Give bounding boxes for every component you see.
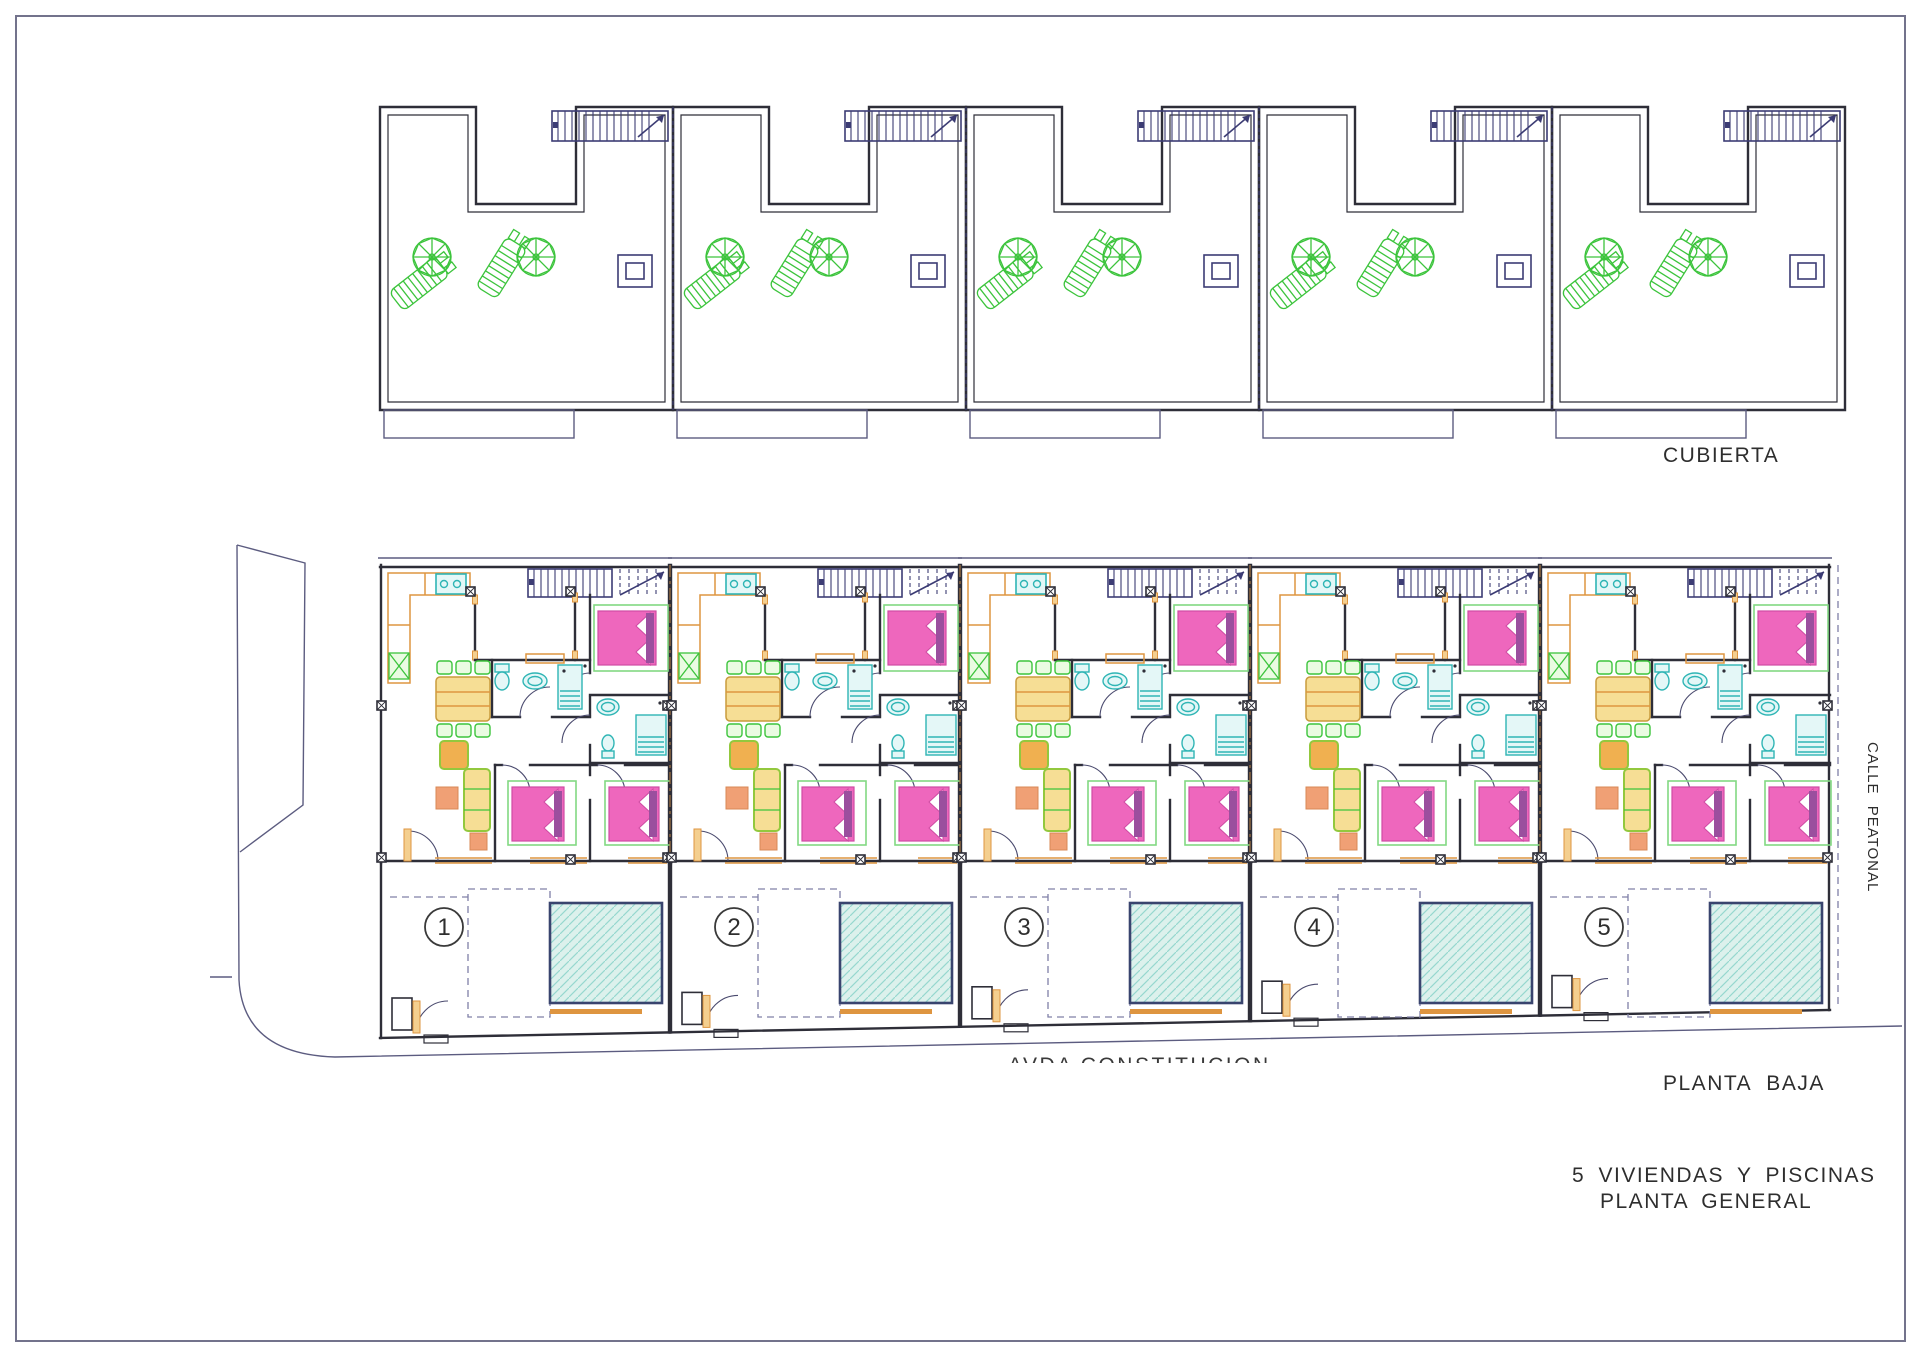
bedroom-2-bed — [798, 781, 866, 845]
living-room — [726, 741, 780, 850]
dining-set — [436, 661, 490, 737]
roof-terrace — [673, 107, 966, 410]
roof-unit-1 — [380, 107, 673, 438]
bedroom-1-bed — [1754, 605, 1828, 671]
ground-unit-2: 2 — [667, 558, 962, 1037]
garden — [380, 863, 670, 1043]
roof-parapet — [1556, 410, 1746, 438]
roof-furniture-group-2 — [1355, 228, 1434, 298]
dining-set — [1306, 661, 1360, 737]
roof-terrace — [966, 107, 1259, 410]
unit-number: 3 — [1017, 914, 1030, 941]
roof-plan-row — [380, 107, 1845, 438]
project-title-line2: PLANTA GENERAL — [1600, 1190, 1812, 1213]
roof-plan-title: CUBIERTA — [1663, 444, 1779, 467]
stairs — [1108, 569, 1244, 597]
bedroom-1-bed — [884, 605, 958, 671]
bedroom-2-bed — [1088, 781, 1156, 845]
dining-set — [1596, 661, 1650, 737]
bedroom-2-bed — [508, 781, 576, 845]
roof-terrace — [380, 107, 673, 410]
unit-number: 5 — [1597, 914, 1610, 941]
roof-unit-5 — [1552, 107, 1845, 438]
bathroom-1-fixtures — [1075, 664, 1167, 709]
roof-furniture-group-2 — [769, 228, 848, 298]
bedroom-3-bed — [1475, 781, 1541, 845]
bathroom-2-fixtures — [887, 699, 956, 758]
living-room — [1016, 741, 1070, 850]
street-label-right: CALLE PEATONAL — [1864, 742, 1881, 892]
bedroom-3-bed — [1185, 781, 1251, 845]
stairs — [528, 569, 664, 597]
roof-parapet — [1263, 410, 1453, 438]
living-room — [436, 741, 490, 850]
drawing-sheet: 1 — [0, 0, 1920, 1357]
dining-set — [1016, 661, 1070, 737]
roof-unit-2 — [673, 107, 966, 438]
ground-unit-4: 4 — [1247, 558, 1542, 1026]
garden — [670, 863, 960, 1037]
roof-terrace — [1552, 107, 1845, 410]
bathroom-1-fixtures — [785, 664, 877, 709]
project-title-line1: 5 VIVIENDAS Y PISCINAS — [1572, 1164, 1876, 1187]
roof-unit-4 — [1259, 107, 1552, 438]
unit-number: 1 — [437, 914, 450, 941]
stairs — [1688, 569, 1824, 597]
floor-plan-svg: 1 — [0, 0, 1920, 1357]
roof-skylight — [1497, 255, 1531, 287]
bathroom-1-fixtures — [1655, 664, 1747, 709]
unit-number: 4 — [1307, 914, 1320, 941]
roof-skylight — [1204, 255, 1238, 287]
bedroom-1-bed — [594, 605, 668, 671]
ground-plan-row: 1 — [377, 558, 1832, 1043]
bedroom-2-bed — [1668, 781, 1736, 845]
bathroom-2-fixtures — [597, 699, 666, 758]
roof-furniture-group-1 — [1268, 238, 1336, 311]
ground-unit-1: 1 — [377, 558, 672, 1043]
garden — [1250, 863, 1540, 1026]
dining-set — [726, 661, 780, 737]
roof-furniture-group-2 — [1648, 228, 1727, 298]
roof-furniture-group-1 — [1561, 238, 1629, 311]
bathroom-2-fixtures — [1467, 699, 1536, 758]
ground-unit-3: 3 — [957, 558, 1252, 1032]
roof-skylight — [911, 255, 945, 287]
unit-number: 2 — [727, 914, 740, 941]
bedroom-3-bed — [895, 781, 961, 845]
roof-furniture-group-1 — [682, 238, 750, 311]
roof-parapet — [384, 410, 574, 438]
bedroom-2-bed — [1378, 781, 1446, 845]
ground-plan-title: PLANTA BAJA — [1663, 1072, 1825, 1095]
ground-unit-5: 5 — [1537, 558, 1832, 1021]
roof-parapet — [677, 410, 867, 438]
street-label-bottom: AVDA CONSTITUCION — [1008, 1054, 1271, 1077]
roof-furniture-group-2 — [476, 228, 555, 298]
roof-furniture-group-1 — [975, 238, 1043, 311]
bathroom-1-fixtures — [495, 664, 587, 709]
roof-furniture-group-2 — [1062, 228, 1141, 298]
bathroom-1-fixtures — [1365, 664, 1457, 709]
garden — [1540, 863, 1830, 1021]
roof-terrace — [1259, 107, 1552, 410]
bedroom-3-bed — [605, 781, 671, 845]
roof-parapet — [970, 410, 1160, 438]
bedroom-1-bed — [1464, 605, 1538, 671]
bedroom-3-bed — [1765, 781, 1831, 845]
stairs — [1398, 569, 1534, 597]
living-room — [1596, 741, 1650, 850]
roof-skylight — [618, 255, 652, 287]
bathroom-2-fixtures — [1757, 699, 1826, 758]
stairs — [818, 569, 954, 597]
bedroom-1-bed — [1174, 605, 1248, 671]
roof-unit-3 — [966, 107, 1259, 438]
roof-skylight — [1790, 255, 1824, 287]
living-room — [1306, 741, 1360, 850]
garden — [960, 863, 1250, 1032]
roof-furniture-group-1 — [389, 238, 457, 311]
bathroom-2-fixtures — [1177, 699, 1246, 758]
